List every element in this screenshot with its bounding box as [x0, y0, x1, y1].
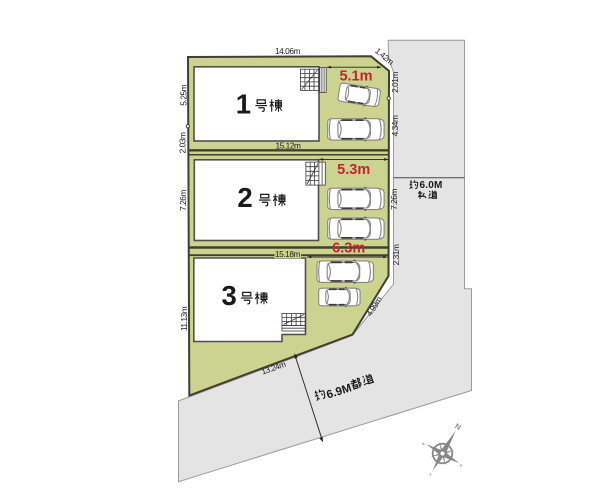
svg-text:7.26m: 7.26m — [389, 189, 399, 210]
svg-text:2.31m: 2.31m — [391, 244, 401, 265]
svg-text:3: 3 — [222, 280, 237, 311]
svg-text:2.01m: 2.01m — [390, 72, 400, 93]
svg-text:14.06m: 14.06m — [275, 46, 301, 56]
svg-text:5.3m: 5.3m — [337, 162, 370, 178]
svg-text:11.13m: 11.13m — [179, 306, 189, 331]
svg-text:4.34m: 4.34m — [390, 115, 400, 136]
svg-text:15.12m: 15.12m — [276, 140, 302, 150]
svg-text:2: 2 — [237, 182, 252, 213]
svg-text:15.18m: 15.18m — [275, 249, 301, 259]
svg-text:5.25m: 5.25m — [179, 84, 189, 105]
svg-text:5.1m: 5.1m — [339, 68, 372, 84]
svg-text:7.26m: 7.26m — [178, 190, 188, 211]
svg-text:1: 1 — [236, 89, 251, 120]
svg-text:2.03m: 2.03m — [178, 132, 188, 153]
svg-text:6.3m: 6.3m — [332, 240, 365, 256]
svg-text:6.0M: 6.0M — [420, 180, 443, 191]
